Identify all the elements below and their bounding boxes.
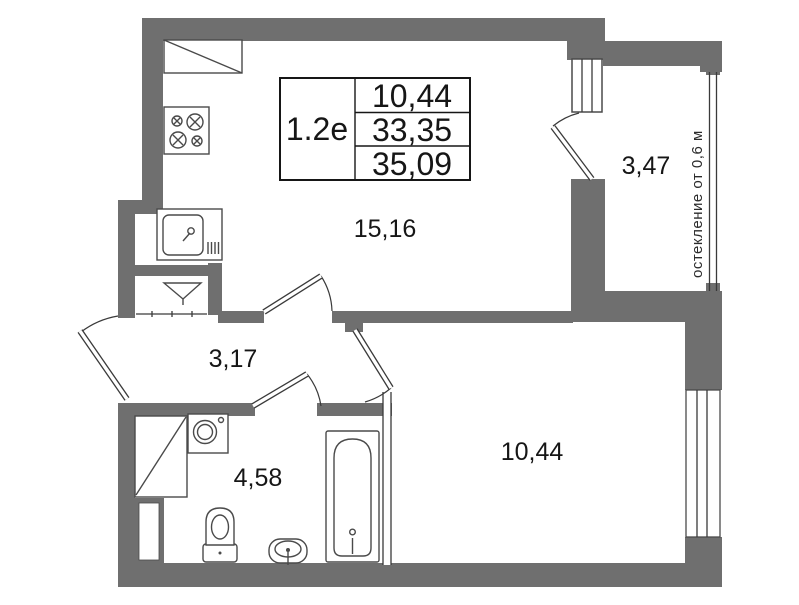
living-balcony-window — [572, 59, 602, 112]
kitchen-sink — [157, 209, 222, 260]
partition-fill — [383, 392, 391, 565]
label-bedroom: 10,44 — [501, 438, 564, 466]
bathroom-shaft — [134, 498, 164, 565]
wall-right-lower-block — [685, 537, 722, 587]
partition-bathroom-bedroom — [383, 392, 391, 565]
bedroom-door — [355, 330, 391, 402]
label-hallway: 3,17 — [209, 345, 258, 373]
wall-bathroom-top-left — [118, 403, 255, 416]
label-bathroom: 4,58 — [234, 464, 283, 492]
balcony-door — [553, 113, 592, 179]
glazing-note: остекление от 0,6 м — [689, 130, 706, 278]
living-room-door — [264, 276, 332, 312]
washing-machine — [188, 414, 228, 453]
glazing-cap-bottom — [706, 283, 720, 292]
stove — [164, 107, 209, 154]
wall-bathroom-top-right — [317, 403, 392, 416]
wall-top-right-corner — [567, 18, 605, 60]
entrance-door — [80, 316, 127, 399]
toilet — [203, 508, 237, 562]
wall-bottom — [118, 563, 722, 587]
wall-right-upper-block — [685, 322, 722, 390]
table-value-3: 35,09 — [372, 146, 452, 182]
ventilation-shaft-icon — [164, 283, 201, 305]
bathtub — [326, 431, 379, 562]
wall-balcony-bottom — [571, 291, 722, 322]
info-table: 1.2е 10,44 33,35 35,09 — [280, 78, 470, 182]
unit-code: 1.2е — [286, 111, 348, 147]
wall-bedroom-top — [332, 311, 573, 323]
label-balcony: 3,47 — [622, 152, 671, 180]
wall-living-right — [571, 179, 605, 293]
bathroom-cabinet — [135, 416, 187, 497]
washbasin — [269, 539, 307, 565]
balcony-glazing — [710, 72, 717, 291]
glazing-cap-top — [706, 66, 720, 75]
table-value-1: 10,44 — [372, 78, 452, 114]
bedroom-window — [686, 390, 720, 537]
wall-left-mid — [118, 200, 135, 318]
bathroom-door — [253, 374, 321, 406]
floor-plan-drawing: 1.2е 10,44 33,35 35,09 15,16 3,47 3,17 4… — [0, 0, 799, 600]
wall-left-upper — [142, 18, 163, 214]
kitchen-counter — [164, 40, 242, 73]
wall-vent-top — [135, 265, 222, 276]
wall-hall-top — [218, 311, 264, 323]
wall-balcony-top — [603, 41, 705, 66]
vent-open-edge — [136, 311, 207, 317]
table-value-2: 33,35 — [372, 112, 452, 148]
wall-left-lower — [118, 403, 135, 587]
wall-top — [142, 18, 605, 41]
floor-plan: 1.2е 10,44 33,35 35,09 15,16 3,47 3,17 4… — [0, 0, 799, 600]
label-kitchen-living: 15,16 — [354, 215, 417, 243]
